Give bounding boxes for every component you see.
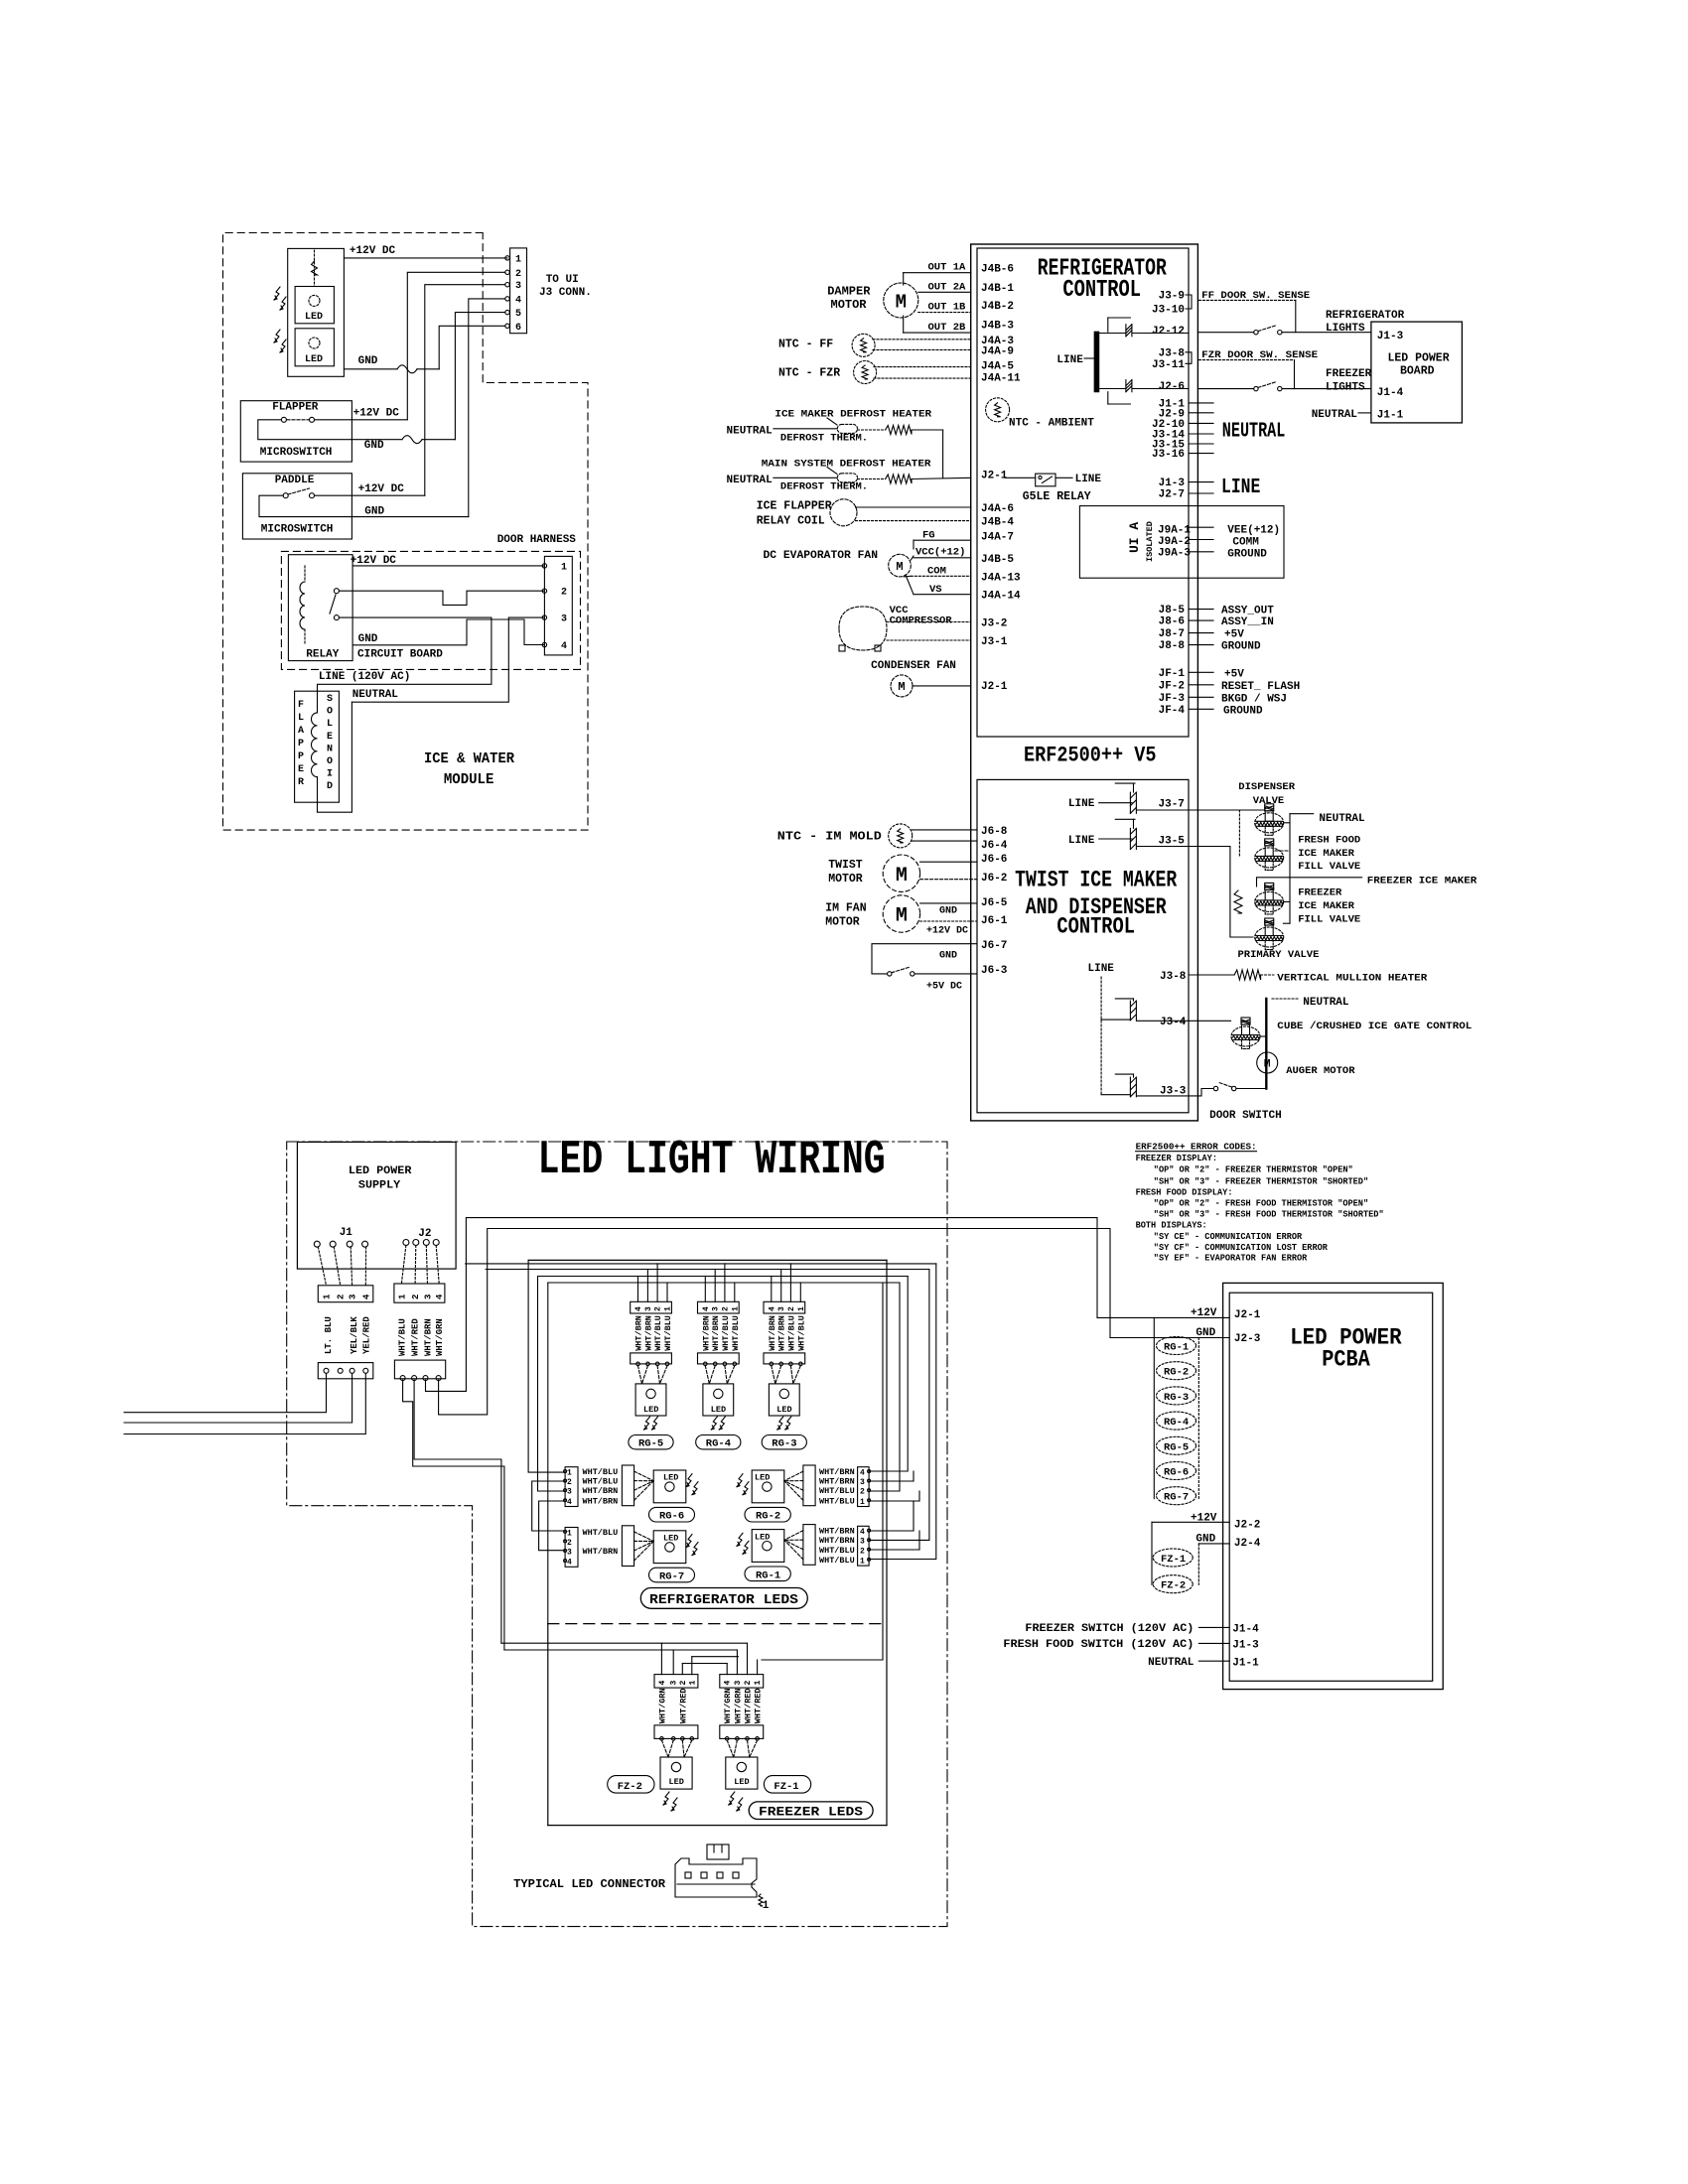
svg-text:NTC - FZR: NTC - FZR — [778, 367, 840, 380]
svg-text:3: 3 — [349, 1295, 358, 1299]
svg-text:4: 4 — [567, 1498, 572, 1507]
svg-text:J4A-14: J4A-14 — [981, 591, 1021, 603]
svg-text:WHT/BLU: WHT/BLU — [819, 1546, 855, 1556]
svg-text:IM FAN: IM FAN — [825, 902, 867, 915]
svg-text:WHT/BRN: WHT/BRN — [777, 1315, 787, 1351]
svg-text:YEL/BLK: YEL/BLK — [350, 1316, 359, 1354]
svg-text:NEUTRAL: NEUTRAL — [727, 475, 774, 486]
svg-text:GND: GND — [358, 355, 378, 367]
svg-text:PADDLE: PADDLE — [275, 475, 315, 486]
svg-text:JF-4: JF-4 — [1159, 705, 1186, 717]
svg-text:5: 5 — [515, 309, 521, 320]
svg-text:J8-6: J8-6 — [1159, 616, 1185, 628]
svg-text:J4A-6: J4A-6 — [981, 503, 1014, 515]
svg-text:DISPENSER: DISPENSER — [1238, 781, 1295, 793]
svg-text:"SY EF" - EVAPORATOR FAN ERROR: "SY EF" - EVAPORATOR FAN ERROR — [1154, 1253, 1308, 1263]
svg-text:J4B-3: J4B-3 — [981, 321, 1014, 333]
svg-text:RG-1: RG-1 — [1164, 1342, 1189, 1354]
svg-text:WHT/BRN: WHT/BRN — [711, 1315, 721, 1351]
svg-text:JF-1: JF-1 — [1159, 668, 1186, 680]
svg-text:RG-4: RG-4 — [1164, 1417, 1189, 1429]
svg-text:FZR DOOR SW. SENSE: FZR DOOR SW. SENSE — [1201, 349, 1318, 361]
svg-text:J6-5: J6-5 — [981, 897, 1008, 909]
svg-text:WHT/BRN: WHT/BRN — [768, 1315, 777, 1351]
svg-text:FZ-1: FZ-1 — [774, 1781, 798, 1793]
svg-text:J9A-3: J9A-3 — [1158, 548, 1191, 560]
svg-text:2: 2 — [567, 1539, 572, 1548]
svg-text:J3-5: J3-5 — [1159, 836, 1186, 848]
svg-text:2: 2 — [567, 1478, 572, 1487]
svg-text:J2: J2 — [418, 1228, 431, 1240]
svg-text:CIRCUIT BOARD: CIRCUIT BOARD — [357, 649, 443, 661]
svg-text:4: 4 — [435, 1294, 445, 1299]
svg-text:J3-11: J3-11 — [1152, 359, 1185, 371]
svg-text:VEE(+12): VEE(+12) — [1227, 525, 1280, 537]
svg-text:MOTOR: MOTOR — [831, 298, 868, 312]
svg-text:4: 4 — [361, 1294, 371, 1299]
svg-text:BOARD: BOARD — [1400, 365, 1435, 378]
svg-text:1: 1 — [567, 1529, 572, 1538]
svg-text:+12V DC: +12V DC — [353, 408, 400, 420]
svg-text:J6-4: J6-4 — [981, 840, 1008, 852]
svg-text:G5LE RELAY: G5LE RELAY — [1023, 490, 1091, 503]
svg-text:WHT/GRN: WHT/GRN — [723, 1688, 733, 1723]
svg-text:J3-8: J3-8 — [1159, 347, 1186, 359]
svg-text:2: 2 — [411, 1295, 421, 1299]
svg-text:J2-7: J2-7 — [1159, 489, 1185, 501]
svg-text:PRIMARY VALVE: PRIMARY VALVE — [1238, 949, 1320, 961]
svg-text:GND: GND — [358, 633, 378, 645]
svg-text:J3-10: J3-10 — [1152, 305, 1185, 317]
svg-text:DEFROST THERM.: DEFROST THERM. — [780, 433, 868, 445]
svg-text:YEL/RED: YEL/RED — [362, 1316, 372, 1354]
svg-text:LED: LED — [663, 1473, 678, 1483]
svg-text:M: M — [1264, 1058, 1271, 1070]
svg-text:WHT/RED: WHT/RED — [411, 1318, 421, 1356]
svg-text:+5V DC: +5V DC — [926, 982, 962, 993]
svg-text:FILL VALVE: FILL VALVE — [1298, 913, 1360, 925]
svg-text:MICROSWITCH: MICROSWITCH — [261, 524, 334, 536]
svg-text:4: 4 — [768, 1306, 776, 1311]
svg-text:WHT/BLU: WHT/BLU — [819, 1496, 855, 1506]
svg-text:J6-1: J6-1 — [981, 915, 1008, 927]
svg-text:M: M — [896, 291, 907, 313]
svg-text:1: 1 — [754, 1681, 763, 1686]
svg-text:M: M — [896, 905, 908, 928]
svg-text:1: 1 — [860, 1498, 865, 1507]
svg-text:SOLENOID: SOLENOID — [327, 694, 333, 792]
svg-text:LED: LED — [305, 354, 323, 365]
svg-text:3: 3 — [424, 1295, 434, 1299]
svg-text:LED: LED — [711, 1405, 726, 1415]
svg-text:+12V DC: +12V DC — [350, 245, 396, 257]
svg-text:FILL VALVE: FILL VALVE — [1298, 861, 1360, 873]
svg-text:NEUTRAL: NEUTRAL — [1319, 813, 1365, 825]
svg-text:COM: COM — [927, 566, 946, 578]
svg-text:LINE: LINE — [1068, 798, 1095, 810]
svg-text:WHT/BRN: WHT/BRN — [701, 1315, 711, 1351]
svg-text:J4B-5: J4B-5 — [981, 554, 1014, 566]
svg-text:3: 3 — [860, 1478, 865, 1487]
svg-text:NEUTRAL: NEUTRAL — [1303, 997, 1349, 1009]
svg-text:2: 2 — [787, 1306, 796, 1311]
svg-text:3: 3 — [670, 1681, 679, 1686]
svg-text:J9A-1: J9A-1 — [1158, 525, 1191, 537]
svg-text:LINE: LINE — [1221, 477, 1260, 499]
svg-text:4: 4 — [860, 1528, 865, 1537]
svg-text:RG-4: RG-4 — [706, 1438, 731, 1450]
svg-text:+5V: +5V — [1224, 668, 1244, 680]
svg-text:WHT/BLU: WHT/BLU — [583, 1467, 619, 1477]
svg-text:J6-6: J6-6 — [981, 854, 1007, 866]
svg-text:GND: GND — [939, 906, 957, 917]
svg-text:J1-4: J1-4 — [1232, 1624, 1259, 1636]
svg-text:2: 2 — [515, 269, 521, 280]
svg-text:ICE & WATER: ICE & WATER — [424, 751, 514, 767]
svg-text:WHT/BRN: WHT/BRN — [819, 1536, 855, 1546]
svg-text:JF-3: JF-3 — [1159, 693, 1186, 705]
svg-text:DOOR HARNESS: DOOR HARNESS — [497, 534, 577, 546]
svg-text:WHT/GRN: WHT/GRN — [657, 1688, 667, 1723]
svg-text:LED: LED — [755, 1532, 770, 1542]
svg-text:ASSY_OUT: ASSY_OUT — [1221, 606, 1274, 617]
svg-text:J6-3: J6-3 — [981, 965, 1008, 977]
svg-text:LINE: LINE — [1056, 354, 1083, 366]
svg-text:J8-7: J8-7 — [1159, 628, 1185, 640]
svg-text:3: 3 — [644, 1306, 653, 1311]
svg-text:"SY CE" - COMMUNICATION ERROR: "SY CE" - COMMUNICATION ERROR — [1154, 1232, 1303, 1242]
svg-text:LED: LED — [663, 1534, 678, 1544]
svg-text:VERTICAL MULLION HEATER: VERTICAL MULLION HEATER — [1277, 973, 1428, 985]
svg-text:J2-4: J2-4 — [1234, 1538, 1261, 1550]
svg-text:LED: LED — [669, 1777, 684, 1787]
svg-text:1: 1 — [323, 1294, 333, 1299]
svg-text:FZ-2: FZ-2 — [1161, 1580, 1186, 1592]
svg-text:NEUTRAL: NEUTRAL — [352, 689, 399, 701]
svg-text:J6-7: J6-7 — [981, 940, 1007, 952]
svg-text:1: 1 — [515, 254, 521, 265]
svg-text:REFRIGERATOR: REFRIGERATOR — [1326, 310, 1405, 322]
svg-text:WHT/BLU: WHT/BLU — [583, 1528, 619, 1538]
svg-text:RG-2: RG-2 — [756, 1511, 780, 1523]
svg-text:WHT/RED: WHT/RED — [754, 1688, 764, 1723]
svg-text:LED LIGHT WIRING: LED LIGHT WIRING — [538, 1134, 886, 1187]
svg-text:FZ-1: FZ-1 — [1161, 1554, 1186, 1566]
svg-text:RG-5: RG-5 — [1164, 1441, 1189, 1453]
svg-text:RG-7: RG-7 — [659, 1571, 684, 1583]
svg-text:LINE (120V AC): LINE (120V AC) — [319, 671, 410, 683]
svg-text:J8-5: J8-5 — [1159, 605, 1186, 616]
svg-text:CONDENSER FAN: CONDENSER FAN — [871, 660, 956, 672]
svg-text:4: 4 — [724, 1681, 733, 1686]
svg-text:J6-8: J6-8 — [981, 826, 1008, 838]
svg-text:J3-2: J3-2 — [981, 618, 1007, 630]
svg-text:LED POWER: LED POWER — [1388, 352, 1450, 365]
svg-text:J4A-11: J4A-11 — [981, 373, 1021, 385]
svg-text:2: 2 — [561, 588, 567, 599]
svg-text:J1-3: J1-3 — [1232, 1640, 1259, 1652]
svg-text:1: 1 — [561, 562, 567, 573]
svg-text:PCBA: PCBA — [1322, 1347, 1370, 1373]
svg-text:WHT/BLU: WHT/BLU — [398, 1318, 408, 1356]
svg-text:LINE: LINE — [1088, 963, 1115, 975]
svg-text:2: 2 — [860, 1488, 865, 1497]
svg-text:WHT/BRN: WHT/BRN — [819, 1467, 855, 1477]
svg-text:4: 4 — [515, 295, 521, 306]
svg-text:WHT/BLU: WHT/BLU — [786, 1315, 796, 1351]
svg-text:J4B-6: J4B-6 — [981, 263, 1014, 275]
svg-text:"SH" OR "3" - FRESH FOOD THERM: "SH" OR "3" - FRESH FOOD THERMISTOR "SHO… — [1154, 1210, 1384, 1220]
svg-text:WHT/BLU: WHT/BLU — [731, 1315, 741, 1351]
svg-text:LED: LED — [305, 312, 323, 323]
svg-text:J4A-7: J4A-7 — [981, 532, 1014, 544]
svg-text:J2-12: J2-12 — [1152, 326, 1185, 338]
svg-text:"OP" OR "2" - FREEZER THERMIST: "OP" OR "2" - FREEZER THERMISTOR "OPEN" — [1154, 1165, 1353, 1175]
svg-text:MOTOR: MOTOR — [828, 873, 863, 886]
svg-text:ERF2500++ ERROR CODES:: ERF2500++ ERROR CODES: — [1136, 1142, 1257, 1153]
svg-text:UI A: UI A — [1127, 522, 1142, 553]
svg-text:SUPPLY: SUPPLY — [358, 1180, 401, 1192]
svg-text:ICE MAKER: ICE MAKER — [1298, 848, 1354, 860]
svg-text:3: 3 — [567, 1488, 572, 1497]
svg-text:J3-9: J3-9 — [1159, 291, 1185, 303]
svg-text:FREEZER SWITCH (120V AC): FREEZER SWITCH (120V AC) — [1025, 1623, 1194, 1635]
svg-text:WHT/BLU: WHT/BLU — [663, 1315, 673, 1351]
svg-text:LT. BLU: LT. BLU — [324, 1316, 334, 1354]
svg-text:FLAPPER: FLAPPER — [298, 700, 304, 788]
svg-text:WHT/RED: WHT/RED — [744, 1688, 754, 1723]
svg-text:J1: J1 — [340, 1227, 353, 1239]
svg-text:3: 3 — [515, 281, 521, 292]
svg-text:GROUND: GROUND — [1227, 549, 1267, 561]
svg-text:ICE MAKER DEFROST HEATER: ICE MAKER DEFROST HEATER — [774, 409, 931, 421]
svg-text:3: 3 — [567, 1549, 572, 1558]
svg-text:WHT/GRN: WHT/GRN — [435, 1318, 445, 1356]
svg-text:MICROSWITCH: MICROSWITCH — [260, 447, 333, 459]
svg-text:2: 2 — [744, 1681, 753, 1686]
svg-text:NTC - IM MOLD: NTC - IM MOLD — [777, 831, 882, 844]
svg-text:WHT/BLU: WHT/BLU — [721, 1315, 731, 1351]
svg-text:4: 4 — [702, 1306, 711, 1311]
svg-text:LED: LED — [755, 1473, 770, 1483]
svg-text:1: 1 — [731, 1306, 740, 1311]
svg-text:REFRIGERATOR LEDS: REFRIGERATOR LEDS — [649, 1593, 798, 1608]
svg-text:NTC - FF: NTC - FF — [778, 338, 833, 350]
svg-text:2: 2 — [679, 1681, 688, 1686]
svg-text:J1-1: J1-1 — [1377, 410, 1404, 422]
svg-text:WHT/BLU: WHT/BLU — [583, 1477, 619, 1487]
svg-text:RG-5: RG-5 — [638, 1438, 663, 1450]
svg-text:WHT/RED: WHT/RED — [678, 1688, 688, 1723]
svg-text:DAMPER: DAMPER — [827, 285, 871, 299]
svg-text:1: 1 — [688, 1681, 697, 1686]
svg-text:RELAY: RELAY — [306, 649, 339, 661]
svg-text:M: M — [896, 865, 908, 887]
svg-text:J2-1: J2-1 — [981, 681, 1008, 693]
svg-text:WHT/GRN: WHT/GRN — [733, 1688, 743, 1723]
svg-text:J2-3: J2-3 — [1234, 1333, 1261, 1345]
svg-text:J8-8: J8-8 — [1159, 640, 1186, 652]
svg-text:CONTROL: CONTROL — [1056, 914, 1135, 940]
svg-text:BKGD / WSJ: BKGD / WSJ — [1221, 693, 1287, 705]
svg-text:RG-7: RG-7 — [1164, 1492, 1189, 1504]
svg-text:GROUND: GROUND — [1221, 641, 1261, 653]
svg-text:3: 3 — [860, 1538, 865, 1547]
svg-text:RG-1: RG-1 — [756, 1570, 780, 1581]
svg-text:WHT/BRN: WHT/BRN — [583, 1496, 619, 1506]
svg-text:FREEZER ICE MAKER: FREEZER ICE MAKER — [1367, 876, 1477, 887]
svg-text:J2-1: J2-1 — [981, 471, 1008, 482]
svg-text:RG-6: RG-6 — [659, 1511, 684, 1523]
svg-text:WHT/BRN: WHT/BRN — [634, 1315, 644, 1351]
svg-text:LINE: LINE — [1075, 474, 1102, 485]
svg-text:J3-16: J3-16 — [1152, 449, 1185, 461]
svg-text:4: 4 — [634, 1306, 643, 1311]
svg-text:J1-4: J1-4 — [1377, 387, 1404, 399]
svg-text:LED: LED — [776, 1405, 791, 1415]
svg-text:2: 2 — [654, 1306, 663, 1311]
svg-text:2: 2 — [337, 1295, 347, 1299]
svg-text:ASSY__IN: ASSY__IN — [1221, 616, 1274, 628]
svg-text:WHT/BRN: WHT/BRN — [819, 1527, 855, 1537]
svg-text:LED: LED — [643, 1405, 658, 1415]
svg-text:M: M — [896, 560, 903, 574]
svg-text:RG-3: RG-3 — [772, 1438, 796, 1450]
svg-text:3: 3 — [777, 1306, 786, 1311]
svg-text:4: 4 — [860, 1469, 865, 1478]
svg-text:J3-4: J3-4 — [1160, 1017, 1187, 1028]
svg-text:J2-2: J2-2 — [1234, 1520, 1260, 1532]
svg-text:1: 1 — [397, 1294, 407, 1299]
svg-text:J3-7: J3-7 — [1159, 799, 1185, 811]
svg-text:1: 1 — [567, 1469, 572, 1478]
svg-text:J3-3: J3-3 — [1160, 1086, 1187, 1098]
svg-text:BOTH DISPLAYS:: BOTH DISPLAYS: — [1136, 1221, 1207, 1231]
svg-text:NEUTRAL: NEUTRAL — [1312, 409, 1358, 421]
svg-text:LED POWER: LED POWER — [349, 1165, 412, 1177]
svg-text:3: 3 — [734, 1681, 743, 1686]
svg-text:OUT 1A: OUT 1A — [928, 262, 967, 274]
svg-text:1: 1 — [860, 1557, 865, 1566]
svg-text:J1-3: J1-3 — [1377, 331, 1404, 342]
svg-text:4: 4 — [567, 1559, 572, 1568]
svg-text:ICE FLAPPER: ICE FLAPPER — [757, 500, 832, 513]
svg-text:DC EVAPORATOR FAN: DC EVAPORATOR FAN — [764, 550, 879, 562]
svg-text:J3-1: J3-1 — [981, 636, 1008, 648]
svg-text:+12V: +12V — [1191, 1307, 1217, 1319]
svg-text:J6-2: J6-2 — [981, 873, 1007, 885]
svg-text:+12V DC: +12V DC — [926, 926, 968, 937]
svg-text:"SY CF" - COMMUNICATION LOST E: "SY CF" - COMMUNICATION LOST ERROR — [1154, 1243, 1329, 1253]
svg-text:"SH" OR "3" - FREEZER THERMIST: "SH" OR "3" - FREEZER THERMISTOR "SHORTE… — [1154, 1177, 1368, 1187]
svg-text:J1-3: J1-3 — [1159, 478, 1186, 489]
svg-text:FREEZER: FREEZER — [1298, 887, 1342, 899]
svg-text:LIGHTS: LIGHTS — [1326, 382, 1365, 394]
svg-text:TYPICAL LED CONNECTOR: TYPICAL LED CONNECTOR — [513, 1878, 665, 1891]
svg-text:J4A-13: J4A-13 — [981, 572, 1021, 584]
svg-text:OUT 2B: OUT 2B — [928, 322, 967, 334]
svg-text:COMM: COMM — [1232, 537, 1259, 549]
svg-text:+5V: +5V — [1224, 629, 1244, 641]
svg-text:GROUND: GROUND — [1223, 705, 1263, 717]
svg-text:MODULE: MODULE — [444, 772, 494, 788]
svg-text:WHT/BLU: WHT/BLU — [653, 1315, 663, 1351]
svg-text:3: 3 — [712, 1306, 721, 1311]
svg-text:J3-8: J3-8 — [1160, 971, 1187, 983]
svg-text:WHT/BLU: WHT/BLU — [819, 1556, 855, 1566]
svg-text:J4A-5: J4A-5 — [981, 361, 1014, 373]
svg-text:ERF2500++ V5: ERF2500++ V5 — [1024, 744, 1157, 768]
svg-text:4: 4 — [561, 641, 567, 652]
svg-text:WHT/BLU: WHT/BLU — [796, 1315, 806, 1351]
svg-text:TWIST ICE MAKER: TWIST ICE MAKER — [1015, 868, 1177, 893]
svg-text:+12V DC: +12V DC — [351, 555, 397, 567]
svg-text:DOOR SWITCH: DOOR SWITCH — [1209, 1110, 1282, 1122]
svg-text:OUT 2A: OUT 2A — [928, 281, 967, 293]
svg-text:6: 6 — [515, 323, 521, 334]
svg-text:J4A-9: J4A-9 — [981, 345, 1014, 357]
svg-text:J2-6: J2-6 — [1159, 381, 1185, 393]
svg-text:4: 4 — [658, 1681, 667, 1686]
svg-text:NEUTRAL: NEUTRAL — [1222, 421, 1286, 444]
svg-text:MOTOR: MOTOR — [825, 916, 860, 929]
svg-text:TO UI: TO UI — [546, 274, 579, 286]
svg-text:J4B-4: J4B-4 — [981, 517, 1014, 529]
svg-text:NEUTRAL: NEUTRAL — [727, 426, 774, 438]
svg-text:J1-1: J1-1 — [1232, 1658, 1259, 1670]
svg-text:VCC(+12): VCC(+12) — [915, 547, 965, 559]
svg-text:WHT/BRN: WHT/BRN — [583, 1547, 619, 1557]
svg-text:2: 2 — [721, 1306, 730, 1311]
svg-text:WHT/BRN: WHT/BRN — [643, 1315, 653, 1351]
svg-text:DEFROST THERM.: DEFROST THERM. — [780, 481, 868, 493]
svg-text:MAIN SYSTEM DEFROST HEATER: MAIN SYSTEM DEFROST HEATER — [762, 459, 931, 471]
svg-text:FRESH FOOD: FRESH FOOD — [1298, 835, 1360, 847]
svg-text:FREEZER DISPLAY:: FREEZER DISPLAY: — [1136, 1154, 1217, 1163]
svg-text:1: 1 — [797, 1306, 806, 1311]
svg-text:FRESH FOOD SWITCH (120V AC): FRESH FOOD SWITCH (120V AC) — [1003, 1639, 1194, 1651]
svg-text:RG-6: RG-6 — [1164, 1467, 1189, 1479]
svg-text:VALVE: VALVE — [1253, 795, 1285, 807]
svg-text:CUBE /CRUSHED ICE GATE CONTROL: CUBE /CRUSHED ICE GATE CONTROL — [1277, 1021, 1472, 1032]
svg-text:J3 CONN.: J3 CONN. — [539, 287, 592, 299]
svg-text:RESET_ FLASH: RESET_ FLASH — [1221, 681, 1300, 693]
svg-text:M: M — [898, 680, 905, 694]
svg-text:GND: GND — [364, 506, 384, 518]
svg-text:FZ-2: FZ-2 — [618, 1781, 642, 1793]
svg-text:NTC - AMBIENT: NTC - AMBIENT — [1009, 418, 1094, 430]
svg-text:J4B-1: J4B-1 — [981, 283, 1014, 295]
svg-text:"OP" OR "2" - FRESH FOOD THERM: "OP" OR "2" - FRESH FOOD THERMISTOR "OPE… — [1154, 1199, 1368, 1209]
svg-text:+12V DC: +12V DC — [358, 483, 405, 495]
svg-text:FREEZER: FREEZER — [1326, 368, 1372, 380]
svg-text:RG-3: RG-3 — [1164, 1392, 1189, 1404]
svg-text:TWIST: TWIST — [828, 859, 863, 872]
svg-text:LED: LED — [734, 1777, 749, 1787]
svg-text:JF-2: JF-2 — [1159, 680, 1185, 692]
svg-text:OUT 1B: OUT 1B — [928, 302, 967, 314]
svg-text:ICE MAKER: ICE MAKER — [1298, 900, 1354, 912]
svg-text:1: 1 — [664, 1306, 673, 1311]
svg-text:NEUTRAL: NEUTRAL — [1148, 1657, 1195, 1669]
svg-text:COMPRESSOR: COMPRESSOR — [890, 615, 953, 627]
svg-text:LIGHTS: LIGHTS — [1326, 323, 1365, 335]
svg-text:J2-1: J2-1 — [1234, 1309, 1261, 1321]
svg-text:WHT/BRN: WHT/BRN — [424, 1318, 434, 1356]
svg-text:J9A-2: J9A-2 — [1158, 536, 1191, 548]
svg-text:LINE: LINE — [1068, 835, 1095, 847]
svg-text:FRESH FOOD DISPLAY:: FRESH FOOD DISPLAY: — [1136, 1188, 1233, 1198]
